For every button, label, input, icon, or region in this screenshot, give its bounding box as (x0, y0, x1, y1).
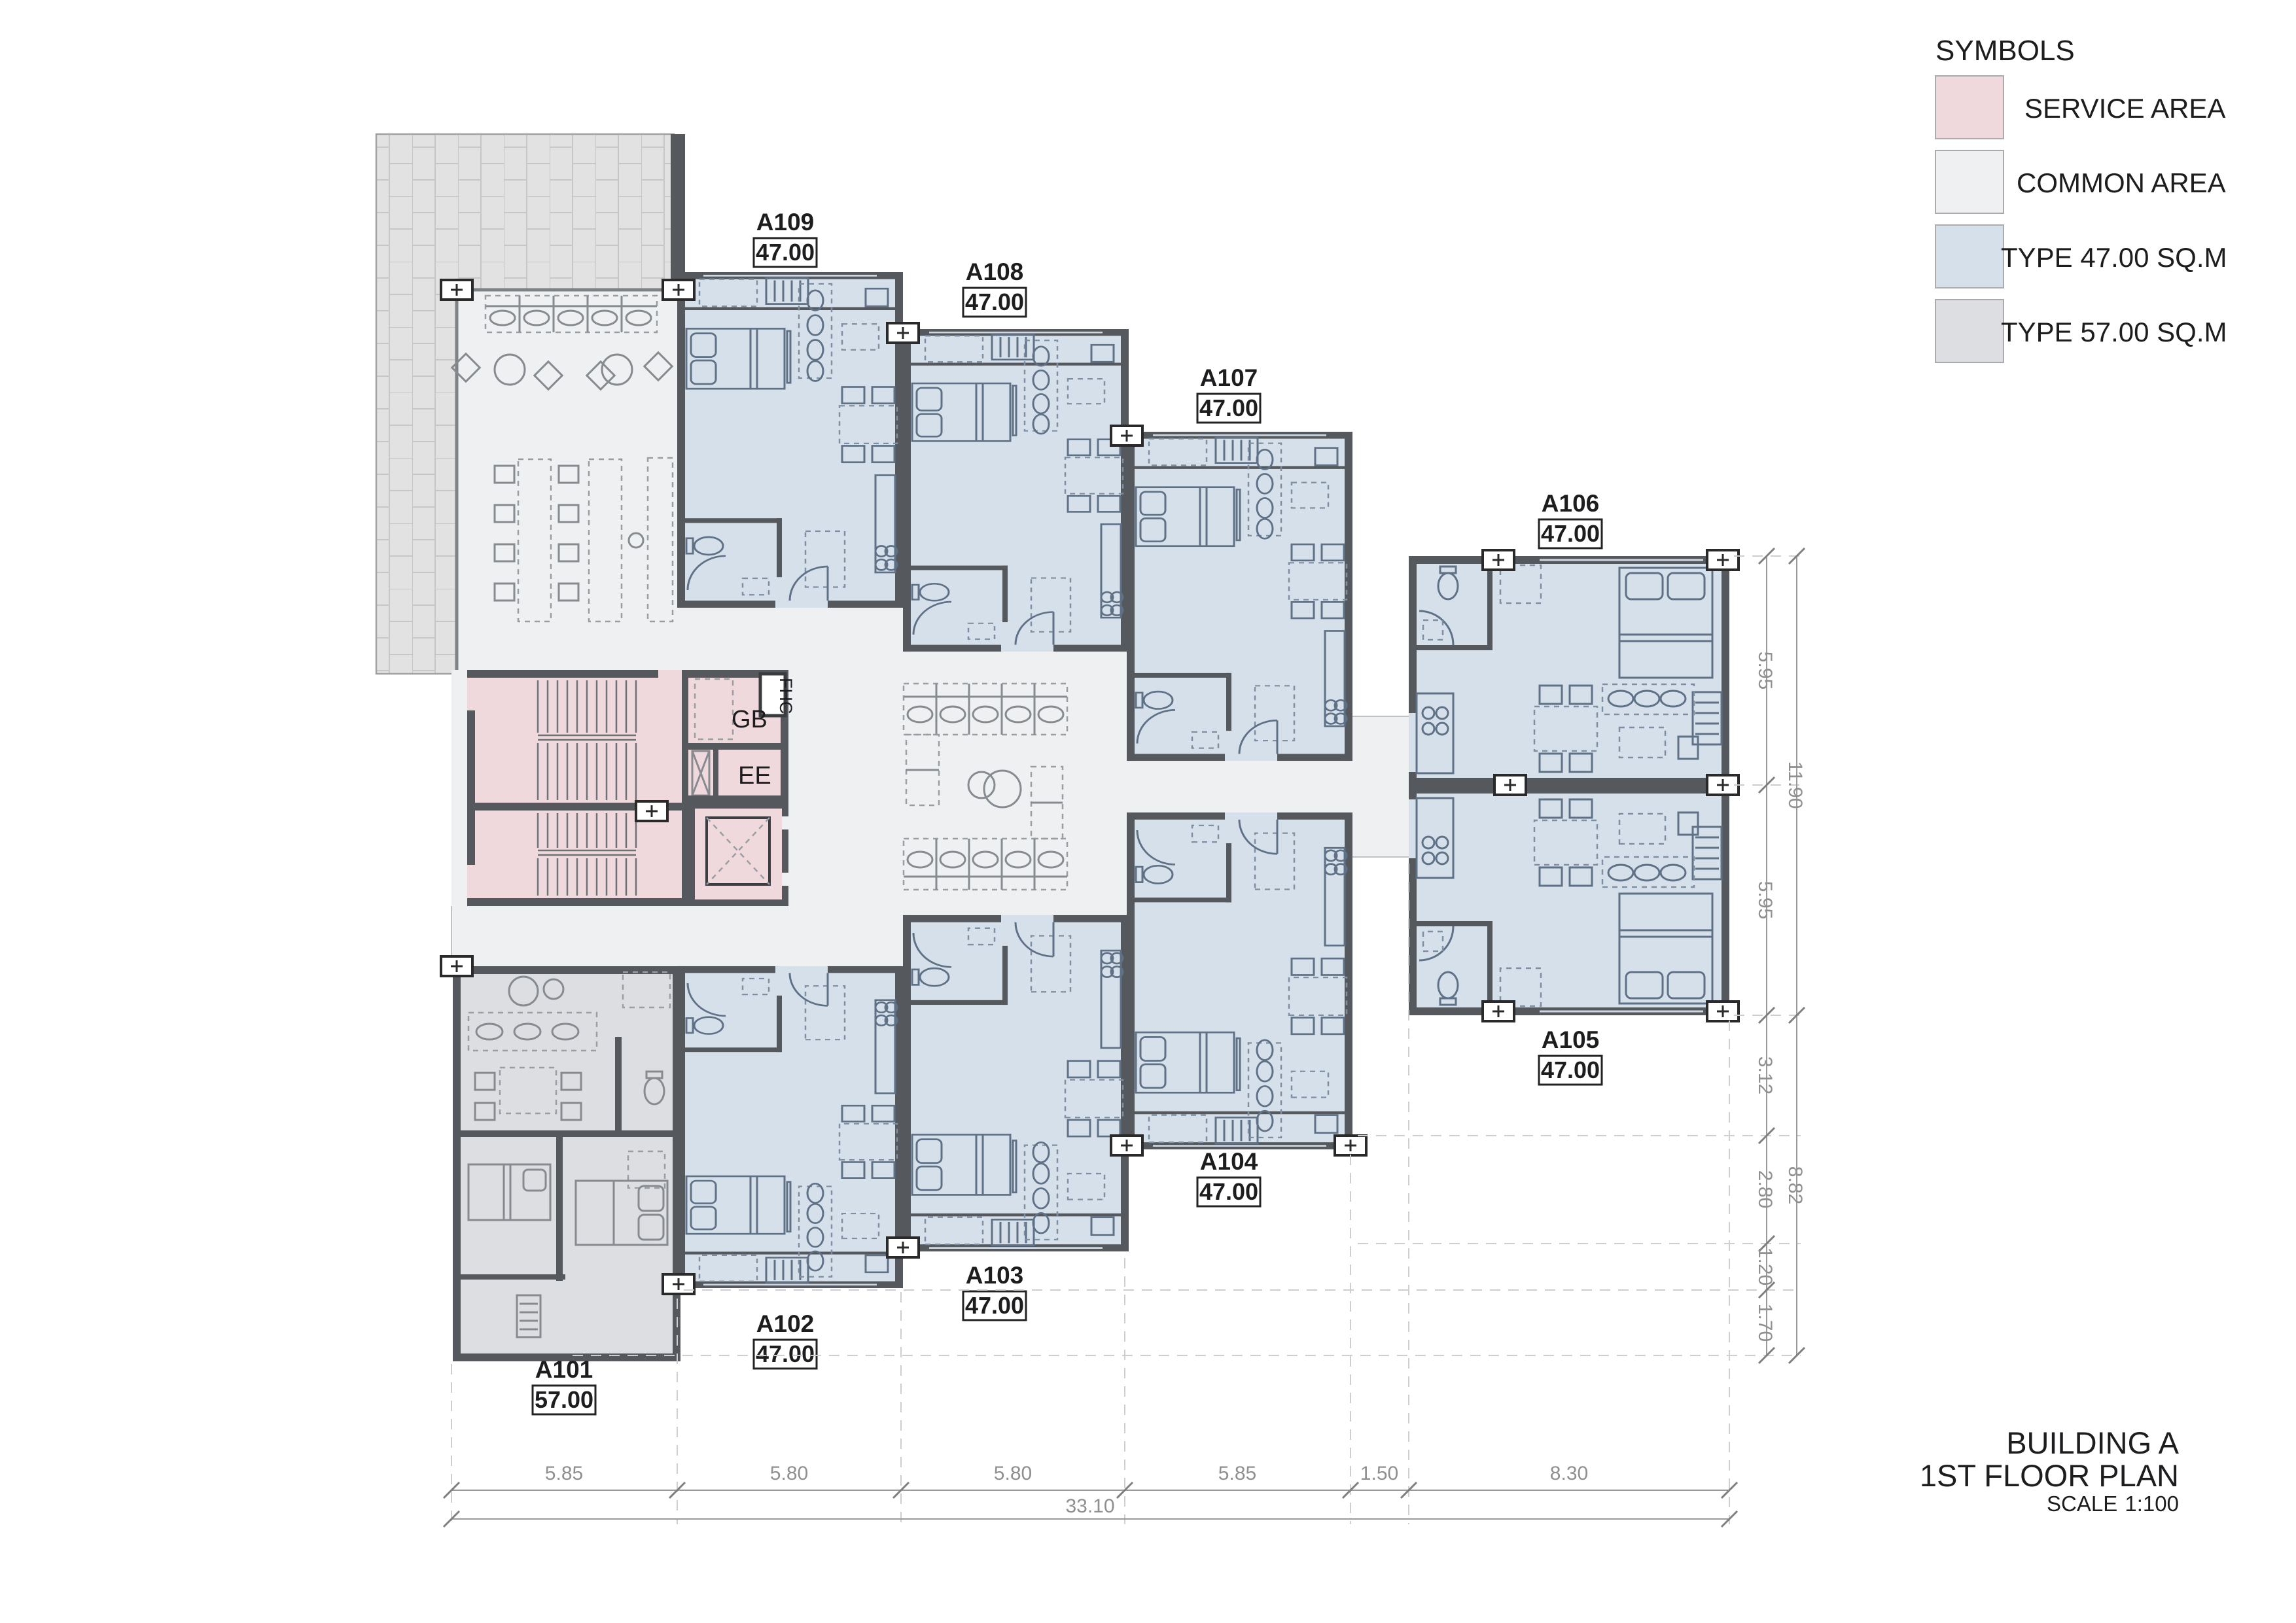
unit-a108 (903, 329, 1129, 652)
unit-a107 (1127, 432, 1352, 761)
unit-a109 (677, 272, 903, 608)
unit-label-a107: A107 47.00 (1197, 364, 1260, 423)
svg-text:1.20: 1.20 (1754, 1248, 1776, 1285)
svg-text:8.30: 8.30 (1550, 1463, 1588, 1484)
svg-text:47.00: 47.00 (1541, 1056, 1600, 1083)
common-area-swatch (1935, 150, 2004, 213)
unit-a105 (1409, 786, 1729, 1015)
svg-text:5.80: 5.80 (770, 1463, 808, 1484)
svg-text:11.90: 11.90 (1784, 761, 1806, 809)
svg-text:A103: A103 (966, 1262, 1023, 1289)
legend: SYMBOLS SERVICE AREA COMMON AREA TYPE 47… (1935, 35, 2227, 362)
svg-text:47.00: 47.00 (1541, 520, 1600, 547)
svg-text:TYPE 47.00 SQ.M: TYPE 47.00 SQ.M (2001, 242, 2227, 273)
unit-label-a101: A101 57.00 (533, 1356, 595, 1414)
unit-a101 (453, 966, 680, 1361)
unit-label-a104: A104 47.00 (1197, 1148, 1260, 1206)
svg-text:A108: A108 (966, 258, 1023, 285)
svg-text:COMMON AREA: COMMON AREA (2017, 167, 2226, 198)
svg-text:47.00: 47.00 (756, 1340, 815, 1367)
floor-plan-canvas: FHC GB EE (0, 0, 2296, 1623)
unit-a102 (677, 966, 903, 1288)
svg-text:SERVICE AREA: SERVICE AREA (2024, 93, 2225, 124)
legend-title: SYMBOLS (1935, 35, 2075, 67)
svg-text:47.00: 47.00 (965, 1292, 1024, 1319)
unit-label-a108: A108 47.00 (963, 258, 1026, 317)
legend-item-type-57: TYPE 57.00 SQ.M (1935, 300, 2227, 362)
scale-value: 1:100 (2125, 1492, 2179, 1516)
unit-label-a105: A105 47.00 (1539, 1026, 1602, 1085)
svg-text:57.00: 57.00 (535, 1386, 593, 1413)
fhc-label: FHC (776, 678, 796, 714)
unit-a104 (1127, 812, 1352, 1149)
svg-text:47.00: 47.00 (965, 288, 1024, 315)
type-47-swatch (1935, 225, 2004, 288)
unit-label-a102: A102 47.00 (754, 1310, 817, 1369)
svg-text:5.85: 5.85 (545, 1463, 583, 1484)
ee-label: EE (738, 762, 771, 790)
svg-text:8.82: 8.82 (1784, 1166, 1806, 1204)
bottom-dimension-chain: 5.85 5.80 5.80 5.85 1.50 8.30 33.10 (444, 1463, 1737, 1527)
service-core: FHC GB EE (467, 670, 796, 906)
svg-text:2.80: 2.80 (1754, 1170, 1776, 1208)
floor-title: 1ST FLOOR PLAN (1920, 1458, 2179, 1493)
terrace-wall (671, 134, 685, 291)
svg-text:A107: A107 (1200, 364, 1258, 391)
svg-text:5.95: 5.95 (1754, 881, 1776, 919)
unit-a103 (903, 915, 1129, 1251)
legend-item-common-area: COMMON AREA (1935, 150, 2226, 213)
svg-text:A105: A105 (1542, 1026, 1599, 1053)
svg-text:A106: A106 (1542, 490, 1599, 517)
legend-item-type-47: TYPE 47.00 SQ.M (1935, 225, 2227, 288)
svg-text:A104: A104 (1200, 1148, 1258, 1175)
service-area-swatch (1935, 76, 2004, 139)
svg-text:A109: A109 (756, 209, 814, 236)
svg-text:5.80: 5.80 (994, 1463, 1032, 1484)
svg-text:5.95: 5.95 (1754, 652, 1776, 689)
svg-text:5.85: 5.85 (1218, 1463, 1256, 1484)
title-block: BUILDING A 1ST FLOOR PLAN SCALE 1:100 (1920, 1425, 2180, 1516)
svg-text:47.00: 47.00 (1199, 1178, 1258, 1205)
svg-text:1.50: 1.50 (1360, 1463, 1398, 1484)
building-title: BUILDING A (2006, 1425, 2179, 1460)
gb-label: GB (732, 706, 768, 733)
unit-label-a103: A103 47.00 (963, 1262, 1026, 1320)
svg-text:A101: A101 (535, 1356, 593, 1383)
svg-text:33.10: 33.10 (1065, 1495, 1114, 1517)
unit-a106 (1409, 556, 1729, 786)
unit-label-a109: A109 47.00 (754, 209, 817, 267)
svg-text:TYPE 57.00 SQ.M: TYPE 57.00 SQ.M (2001, 317, 2227, 347)
unit-label-a106: A106 47.00 (1539, 490, 1602, 548)
svg-text:1.70: 1.70 (1754, 1304, 1776, 1342)
right-dimension-chain: 5.95 5.95 3.12 2.80 1.20 1.70 11.90 8.82 (1754, 548, 1806, 1363)
scale-label: SCALE (2047, 1492, 2117, 1516)
svg-text:47.00: 47.00 (1199, 394, 1258, 421)
svg-text:47.00: 47.00 (756, 239, 815, 266)
svg-text:3.12: 3.12 (1754, 1056, 1776, 1094)
type-57-swatch (1935, 300, 2004, 362)
svg-text:A102: A102 (756, 1310, 814, 1337)
legend-item-service-area: SERVICE AREA (1935, 76, 2225, 139)
